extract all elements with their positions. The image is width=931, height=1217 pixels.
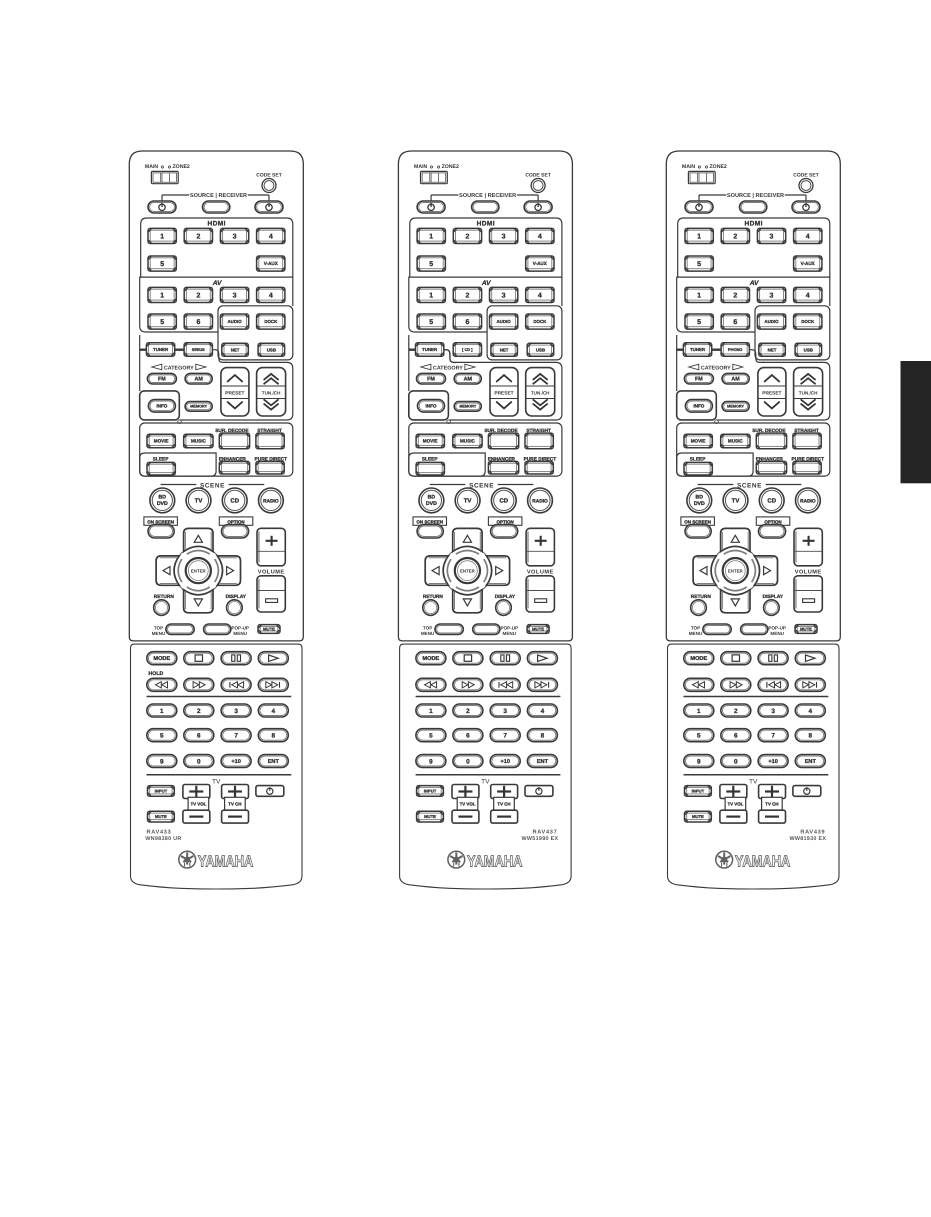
svg-text:SOURCE | RECEIVER: SOURCE | RECEIVER	[190, 192, 247, 199]
svg-text:V-AUX: V-AUX	[533, 261, 548, 266]
svg-text:SOURCE | RECEIVER: SOURCE | RECEIVER	[727, 192, 784, 199]
svg-text:0: 0	[734, 758, 738, 765]
svg-text:5: 5	[697, 319, 701, 326]
svg-text:POP-UP: POP-UP	[768, 626, 786, 631]
svg-text:TV: TV	[749, 778, 758, 785]
svg-text:9: 9	[697, 758, 701, 765]
svg-text:TV: TV	[481, 778, 490, 785]
svg-text:FM: FM	[158, 377, 166, 383]
svg-text:3: 3	[502, 293, 506, 300]
svg-text:4: 4	[541, 708, 545, 715]
svg-text:ZONE2: ZONE2	[442, 164, 459, 170]
svg-text:7: 7	[234, 733, 238, 740]
svg-text:TV CH: TV CH	[765, 802, 778, 807]
svg-text:MUSIC: MUSIC	[728, 439, 743, 444]
svg-text:2: 2	[196, 234, 200, 241]
svg-text:MODE: MODE	[690, 656, 707, 662]
svg-text:0: 0	[197, 758, 201, 765]
svg-text:0: 0	[466, 758, 470, 765]
svg-text:1: 1	[429, 293, 433, 300]
svg-text:1: 1	[429, 708, 433, 715]
svg-text:INPUT: INPUT	[692, 789, 705, 794]
svg-text:HDMI: HDMI	[477, 220, 495, 227]
svg-text:6: 6	[465, 319, 469, 326]
svg-text:INFO: INFO	[426, 404, 437, 409]
svg-text:MOVIE: MOVIE	[691, 439, 706, 444]
svg-text:NET: NET	[231, 347, 240, 352]
svg-text:2: 2	[196, 293, 200, 300]
svg-text:BD: BD	[159, 495, 167, 501]
svg-text:CD: CD	[230, 498, 239, 505]
svg-text:MODE: MODE	[423, 656, 440, 662]
svg-text:HDMI: HDMI	[744, 220, 762, 227]
svg-text:4: 4	[272, 708, 276, 715]
svg-text:RAV433: RAV433	[147, 830, 172, 836]
svg-text:3: 3	[770, 293, 774, 300]
svg-text:RETURN: RETURN	[423, 594, 444, 600]
svg-text:6: 6	[196, 319, 200, 326]
svg-text:POP-UP: POP-UP	[231, 626, 249, 631]
svg-text:DISPLAY: DISPLAY	[226, 594, 247, 600]
svg-text:6: 6	[733, 319, 737, 326]
svg-text:TUNER: TUNER	[690, 347, 706, 352]
svg-text:3: 3	[234, 708, 238, 715]
svg-text:AM: AM	[731, 377, 740, 383]
svg-text:6: 6	[734, 733, 738, 740]
svg-text:TUNER: TUNER	[422, 347, 438, 352]
svg-text:RAV439: RAV439	[800, 830, 825, 836]
svg-text:SOURCE | RECEIVER: SOURCE | RECEIVER	[459, 192, 516, 199]
svg-text:DVD: DVD	[426, 501, 437, 507]
svg-text:FM: FM	[695, 377, 703, 383]
svg-text:USB: USB	[267, 347, 276, 352]
svg-text:CATEGORY: CATEGORY	[701, 365, 731, 371]
svg-text:FM: FM	[427, 377, 435, 383]
svg-text:DISPLAY: DISPLAY	[495, 594, 516, 600]
svg-text:RETURN: RETURN	[154, 594, 175, 600]
svg-text:5: 5	[429, 261, 433, 268]
svg-text:+10: +10	[231, 759, 241, 765]
svg-text:DVD: DVD	[694, 501, 705, 507]
svg-text:+10: +10	[500, 759, 510, 765]
svg-text:PRESET: PRESET	[225, 391, 244, 397]
svg-text:AV: AV	[749, 280, 759, 287]
svg-text:TUN./CH: TUN./CH	[799, 391, 818, 396]
svg-text:ENT: ENT	[268, 759, 280, 765]
svg-text:6: 6	[466, 733, 470, 740]
svg-text:RAV437: RAV437	[532, 830, 557, 836]
svg-text:RADIO: RADIO	[263, 499, 279, 505]
svg-text:AUDIO: AUDIO	[764, 319, 779, 324]
svg-text:5: 5	[697, 733, 701, 740]
svg-text:INFO: INFO	[156, 404, 167, 409]
svg-text:TOP: TOP	[154, 626, 163, 631]
svg-text:YAMAHA: YAMAHA	[198, 853, 254, 870]
svg-text:TOP: TOP	[423, 626, 432, 631]
svg-text:1: 1	[160, 234, 164, 241]
svg-text:1: 1	[697, 708, 701, 715]
svg-text:3: 3	[233, 234, 237, 241]
svg-text:4: 4	[809, 708, 813, 715]
svg-text:7: 7	[503, 733, 507, 740]
svg-text:MUSIC: MUSIC	[191, 439, 206, 444]
svg-text:TV: TV	[195, 498, 203, 505]
svg-text:SLEEP: SLEEP	[422, 456, 439, 462]
svg-text:RETURN: RETURN	[691, 594, 712, 600]
svg-text:8: 8	[809, 733, 813, 740]
svg-text:3: 3	[770, 234, 774, 241]
svg-text:CATEGORY: CATEGORY	[433, 365, 463, 371]
svg-text:ENT: ENT	[805, 759, 817, 765]
svg-text:3: 3	[233, 293, 237, 300]
svg-text:AM: AM	[195, 377, 204, 383]
svg-text:MAIN: MAIN	[414, 164, 428, 170]
svg-text:V-AUX: V-AUX	[264, 261, 279, 266]
svg-text:AV: AV	[212, 280, 222, 287]
svg-text:4: 4	[806, 293, 810, 300]
svg-text:2: 2	[733, 293, 737, 300]
svg-text:SCENE: SCENE	[737, 482, 762, 489]
svg-text:ZONE2: ZONE2	[710, 164, 727, 170]
svg-text:PHONO: PHONO	[728, 347, 742, 352]
svg-text:MAIN: MAIN	[145, 164, 159, 170]
svg-text:DOCK: DOCK	[801, 319, 815, 324]
svg-text:AUDIO: AUDIO	[228, 319, 243, 324]
svg-text:CATEGORY: CATEGORY	[164, 365, 194, 371]
svg-text:1: 1	[160, 293, 164, 300]
svg-text:TV: TV	[212, 778, 221, 785]
svg-text:DOCK: DOCK	[533, 319, 547, 324]
svg-text:2: 2	[465, 293, 469, 300]
svg-text:TV CH: TV CH	[228, 802, 241, 807]
svg-text:MEMORY: MEMORY	[459, 405, 476, 409]
svg-text:[ CD ]: [ CD ]	[462, 347, 473, 352]
svg-text:3: 3	[502, 234, 506, 241]
svg-text:8: 8	[272, 733, 276, 740]
svg-text:2: 2	[197, 708, 201, 715]
svg-text:CD: CD	[499, 498, 508, 505]
svg-text:ZONE2: ZONE2	[173, 164, 190, 170]
svg-text:YAMAHA: YAMAHA	[735, 853, 791, 870]
svg-text:ENTER: ENTER	[191, 568, 207, 573]
svg-text:4: 4	[269, 293, 273, 300]
svg-text:1: 1	[697, 293, 701, 300]
svg-text:CODE SET: CODE SET	[793, 173, 819, 179]
svg-text:TUN./CH: TUN./CH	[262, 391, 281, 396]
svg-text:VOLUME: VOLUME	[527, 569, 554, 575]
svg-text:3: 3	[771, 708, 775, 715]
svg-text:MENU: MENU	[233, 631, 247, 636]
svg-text:MENU: MENU	[503, 631, 517, 636]
svg-text:POP-UP: POP-UP	[500, 626, 518, 631]
svg-text:5: 5	[429, 733, 433, 740]
svg-text:MENU: MENU	[689, 631, 703, 636]
svg-text:TV: TV	[464, 498, 472, 505]
svg-text:4: 4	[538, 234, 542, 241]
svg-text:9: 9	[429, 758, 433, 765]
svg-text:4: 4	[806, 234, 810, 241]
svg-text:1: 1	[160, 708, 164, 715]
svg-text:BD: BD	[696, 495, 704, 501]
svg-text:5: 5	[697, 261, 701, 268]
svg-text:USB: USB	[536, 347, 545, 352]
svg-text:DOCK: DOCK	[264, 319, 278, 324]
svg-text:TOP: TOP	[691, 626, 700, 631]
svg-text:MAIN: MAIN	[682, 164, 696, 170]
svg-text:AUDIO: AUDIO	[497, 319, 512, 324]
svg-text:MEMORY: MEMORY	[190, 405, 207, 409]
svg-text:MUTE: MUTE	[263, 627, 275, 632]
svg-text:CD: CD	[767, 498, 776, 505]
svg-text:8: 8	[541, 733, 545, 740]
svg-text:WW81930 EX: WW81930 EX	[789, 836, 826, 842]
svg-text:MUTE: MUTE	[424, 814, 436, 819]
svg-text:INPUT: INPUT	[155, 789, 168, 794]
svg-text:WN98380 UR: WN98380 UR	[145, 836, 181, 842]
svg-text:RADIO: RADIO	[800, 499, 816, 505]
svg-text:ENTER: ENTER	[728, 568, 744, 573]
svg-text:1: 1	[429, 234, 433, 241]
svg-text:SLEEP: SLEEP	[153, 456, 170, 462]
svg-text:5: 5	[160, 261, 164, 268]
svg-text:MENU: MENU	[152, 631, 166, 636]
svg-text:NET: NET	[768, 347, 777, 352]
svg-text:MUSIC: MUSIC	[460, 439, 475, 444]
svg-text:9: 9	[160, 758, 164, 765]
svg-text:V-AUX: V-AUX	[801, 261, 816, 266]
svg-text:MUTE: MUTE	[155, 814, 167, 819]
svg-text:MODE: MODE	[153, 656, 170, 662]
svg-text:SLEEP: SLEEP	[690, 456, 707, 462]
svg-text:RADIO: RADIO	[532, 499, 548, 505]
svg-text:TUN./CH: TUN./CH	[531, 391, 550, 396]
svg-text:2: 2	[465, 234, 469, 241]
svg-text:5: 5	[429, 319, 433, 326]
svg-text:ENT: ENT	[537, 759, 549, 765]
svg-text:MENU: MENU	[421, 631, 435, 636]
svg-text:5: 5	[160, 319, 164, 326]
svg-text:2: 2	[466, 708, 470, 715]
svg-text:TUNER: TUNER	[153, 347, 169, 352]
svg-text:USB: USB	[804, 347, 813, 352]
svg-text:2: 2	[733, 234, 737, 241]
svg-text:TV VOL: TV VOL	[190, 802, 206, 807]
svg-text:PRESET: PRESET	[762, 391, 781, 397]
svg-text:MUTE: MUTE	[692, 814, 704, 819]
svg-text:4: 4	[538, 293, 542, 300]
svg-text:HOLD: HOLD	[149, 671, 164, 677]
svg-text:SCENE: SCENE	[469, 482, 494, 489]
svg-text:AV: AV	[481, 280, 491, 287]
svg-text:TV: TV	[732, 498, 740, 505]
svg-text:MUTE: MUTE	[532, 627, 544, 632]
svg-text:BD: BD	[428, 495, 436, 501]
svg-text:DISPLAY: DISPLAY	[763, 594, 784, 600]
svg-text:TV VOL: TV VOL	[727, 802, 743, 807]
svg-text:3: 3	[503, 708, 507, 715]
svg-text:2: 2	[734, 708, 738, 715]
svg-text:MOVIE: MOVIE	[423, 439, 438, 444]
svg-text:1: 1	[697, 234, 701, 241]
svg-text:DVD: DVD	[157, 501, 168, 507]
svg-text:YAMAHA: YAMAHA	[467, 853, 523, 870]
svg-text:MEMORY: MEMORY	[727, 405, 744, 409]
svg-text:NET: NET	[500, 347, 509, 352]
svg-text:5: 5	[160, 733, 164, 740]
svg-text:MENU: MENU	[770, 631, 784, 636]
svg-text:TV VOL: TV VOL	[460, 802, 476, 807]
svg-text:SCENE: SCENE	[200, 482, 225, 489]
svg-text:WW51990 EX: WW51990 EX	[522, 836, 559, 842]
svg-text:VOLUME: VOLUME	[795, 569, 822, 575]
svg-text:+10: +10	[768, 759, 778, 765]
svg-text:HDMI: HDMI	[207, 220, 225, 227]
svg-text:CODE SET: CODE SET	[256, 173, 282, 179]
svg-text:TV CH: TV CH	[497, 802, 510, 807]
svg-text:7: 7	[771, 733, 775, 740]
svg-text:MUTE: MUTE	[800, 627, 812, 632]
svg-text:INFO: INFO	[693, 404, 704, 409]
svg-text:6: 6	[197, 733, 201, 740]
svg-text:4: 4	[269, 234, 273, 241]
svg-text:MOVIE: MOVIE	[154, 439, 169, 444]
svg-text:CODE SET: CODE SET	[525, 173, 551, 179]
svg-text:PRESET: PRESET	[494, 391, 513, 397]
svg-text:AM: AM	[464, 377, 473, 383]
svg-text:SIRIUS: SIRIUS	[192, 347, 205, 352]
svg-text:ENTER: ENTER	[460, 568, 476, 573]
svg-text:VOLUME: VOLUME	[258, 569, 285, 575]
svg-text:INPUT: INPUT	[424, 789, 437, 794]
